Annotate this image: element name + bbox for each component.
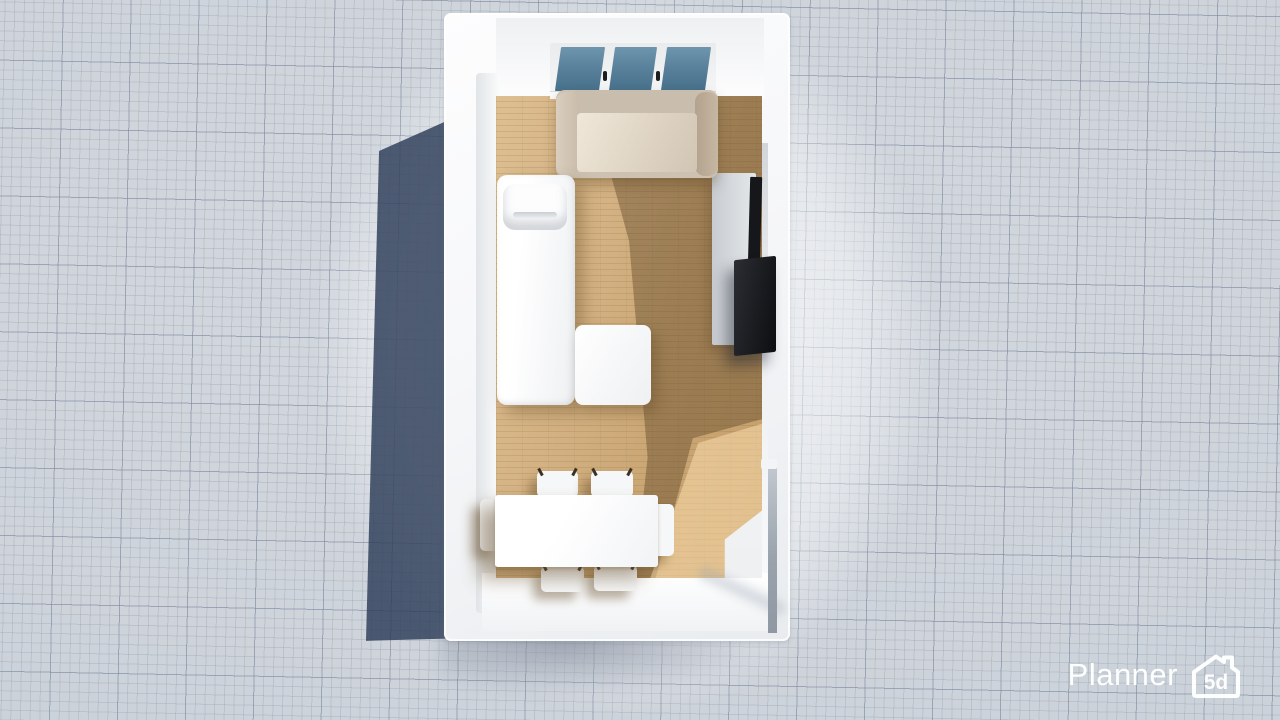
sofa-seat [577,113,697,172]
headrest-seam [513,212,557,218]
watermark-badge-text: 5d [1204,671,1229,694]
window-handle [656,71,660,81]
ottoman-chaise[interactable] [575,325,651,405]
door-frame[interactable] [768,465,777,633]
white-sectional-sofa[interactable] [497,175,575,405]
dining-chair[interactable] [591,471,633,497]
window-pane [661,47,711,91]
planner-3d-viewport[interactable]: Planner 5d [0,0,1280,720]
beige-sofa[interactable] [556,90,718,178]
sofa-armrest-left [556,92,579,176]
planner5d-house-icon: 5d [1188,652,1244,700]
sofa-armrest-right [695,92,718,176]
window-handle [603,71,607,81]
door-frame-cap [761,459,777,469]
tv-flat-screen[interactable] [748,177,762,269]
sectional-headrest [503,184,567,230]
media-cabinet[interactable] [734,256,776,356]
room[interactable] [444,13,790,641]
planner5d-watermark: Planner 5d [1068,652,1244,700]
dining-chair[interactable] [594,565,637,591]
dining-chair[interactable] [541,566,584,592]
window-pane [609,47,657,91]
window-pane [555,47,605,91]
watermark-brand-text: Planner [1068,659,1178,694]
dining-table[interactable] [495,495,658,567]
dining-chair[interactable] [537,471,578,497]
